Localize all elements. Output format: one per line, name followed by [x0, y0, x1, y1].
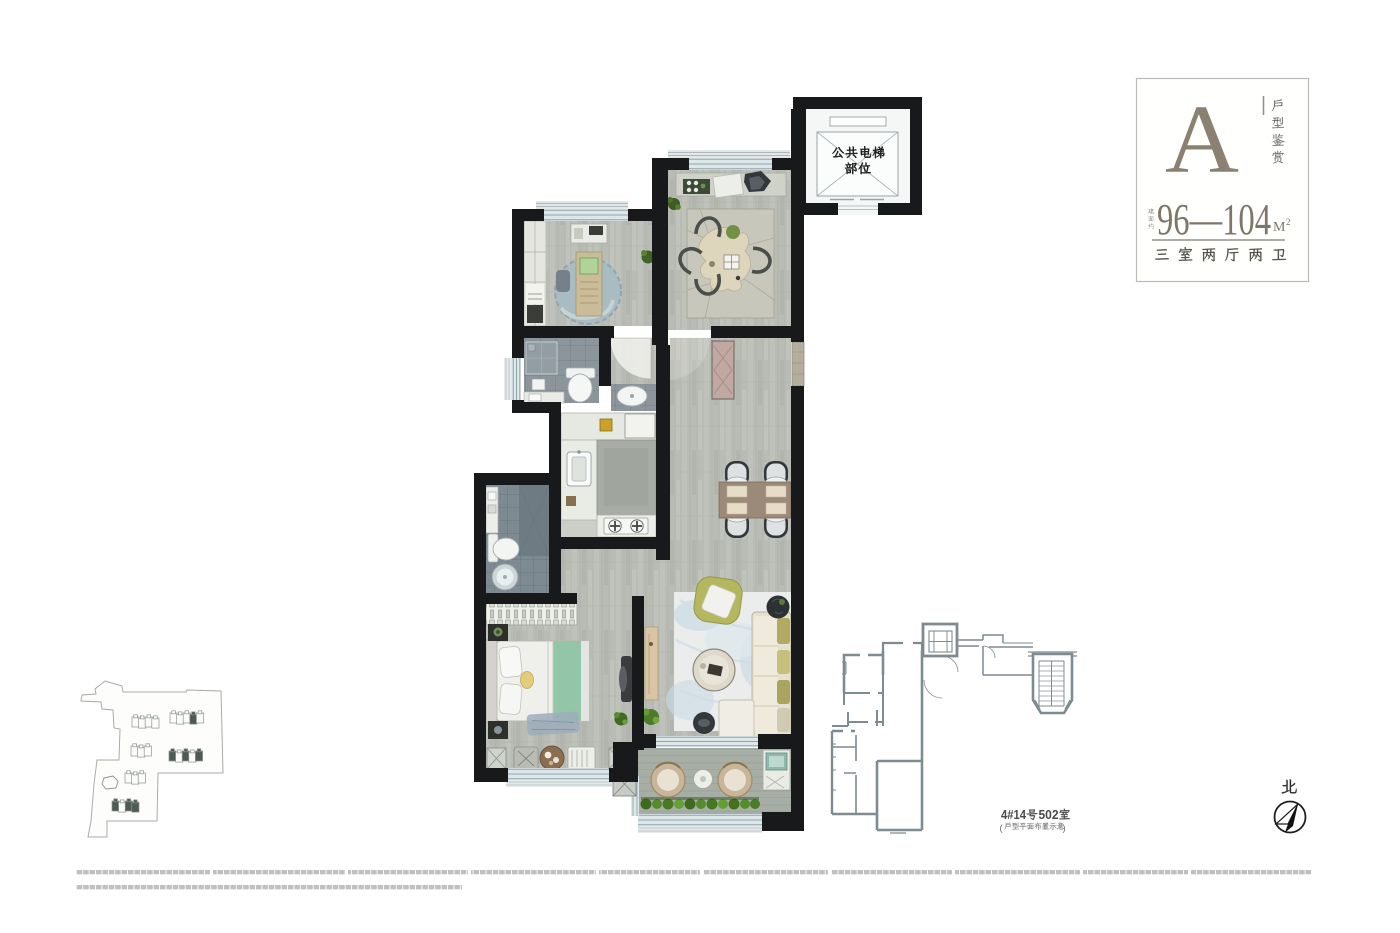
svg-text:M: M	[1273, 220, 1286, 235]
svg-text:A: A	[1165, 86, 1239, 193]
svg-text:2: 2	[1286, 217, 1291, 227]
svg-text:502: 502	[1039, 808, 1059, 822]
svg-text:4#14: 4#14	[1001, 808, 1026, 822]
svg-text:96—104: 96—104	[1157, 195, 1271, 244]
svg-text:): )	[1063, 823, 1066, 834]
